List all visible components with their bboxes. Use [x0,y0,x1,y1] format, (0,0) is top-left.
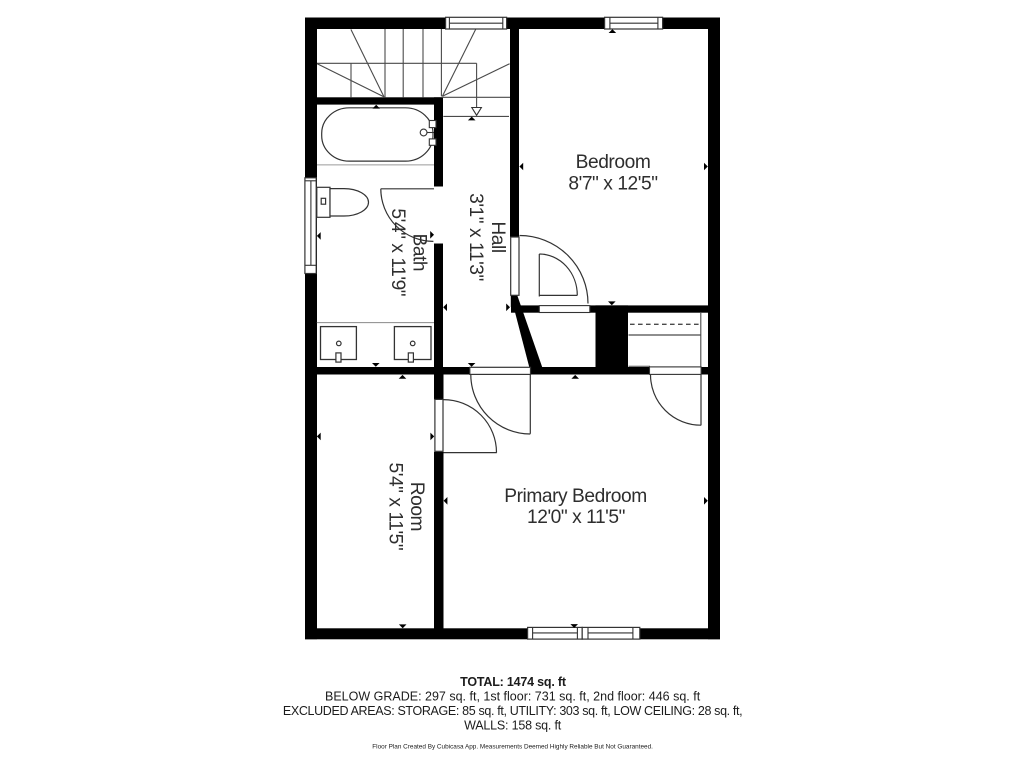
svg-text:Hall: Hall [487,221,508,252]
svg-text:Room: Room [406,482,427,531]
svg-text:Primary Bedroom: Primary Bedroom [504,486,647,507]
svg-text:WALLS: 158 sq. ft: WALLS: 158 sq. ft [464,718,562,732]
svg-text:8'7" x 12'5": 8'7" x 12'5" [568,174,657,195]
svg-text:EXCLUDED AREAS: STORAGE: 85 sq: EXCLUDED AREAS: STORAGE: 85 sq. ft, UTIL… [283,704,742,718]
svg-text:Bath: Bath [408,233,429,271]
svg-text:5'4" x 11'9": 5'4" x 11'9" [387,208,408,296]
svg-text:TOTAL: 1474 sq. ft: TOTAL: 1474 sq. ft [460,675,567,689]
svg-text:Bedroom: Bedroom [576,152,651,173]
svg-text:BELOW GRADE: 297 sq. ft, 1st f: BELOW GRADE: 297 sq. ft, 1st floor: 731 … [325,690,701,704]
svg-text:12'0" x 11'5": 12'0" x 11'5" [527,507,625,528]
svg-text:3'1" x 11'3": 3'1" x 11'3" [465,193,486,281]
svg-text:5'4" x 11'5": 5'4" x 11'5" [384,463,405,551]
svg-text:Floor Plan Created By Cubicasa: Floor Plan Created By Cubicasa App. Meas… [372,744,653,751]
